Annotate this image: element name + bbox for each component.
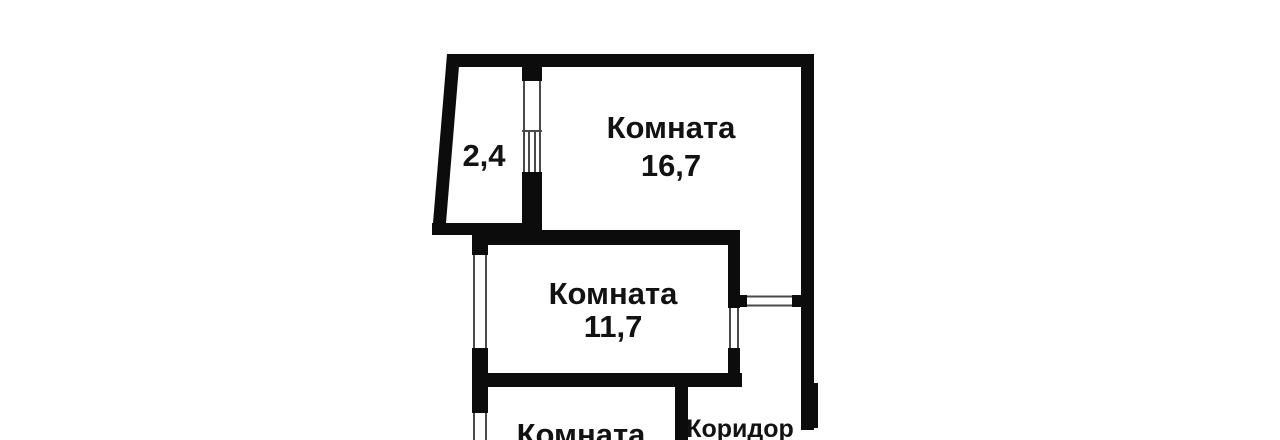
wall-left-segment-upper — [472, 223, 488, 255]
room-top-area-label: 16,7 — [641, 148, 701, 183]
wall-niche-stub-right — [792, 295, 803, 307]
floorplan-canvas: 2,4 Комната 16,7 Комната 11,7 Комната Ко… — [0, 0, 1280, 440]
wall-room-middle-bottom — [472, 373, 742, 387]
wall-balcony-divider-bottom — [522, 172, 542, 235]
room-middle-area-label: 11,7 — [584, 309, 643, 344]
wall-room-middle-right-upper — [728, 245, 740, 308]
balcony-area-label: 2,4 — [462, 138, 506, 173]
room-top-name-label: Комната — [607, 110, 737, 145]
wall-right-outer — [801, 54, 814, 430]
room-middle-name-label: Комната — [549, 276, 679, 311]
floorplan-svg: 2,4 Комната 16,7 Комната 11,7 Комната Ко… — [0, 0, 1280, 440]
wall-right-pier — [801, 383, 818, 428]
wall-balcony-divider-top — [522, 66, 542, 81]
wall-niche-stub-left — [740, 295, 747, 307]
corridor-name-label: Коридор — [686, 415, 794, 440]
wall-top-outer — [448, 54, 814, 67]
wall-room-top-bottom — [472, 230, 740, 245]
room-bottom-name-label: Комната — [517, 417, 647, 440]
